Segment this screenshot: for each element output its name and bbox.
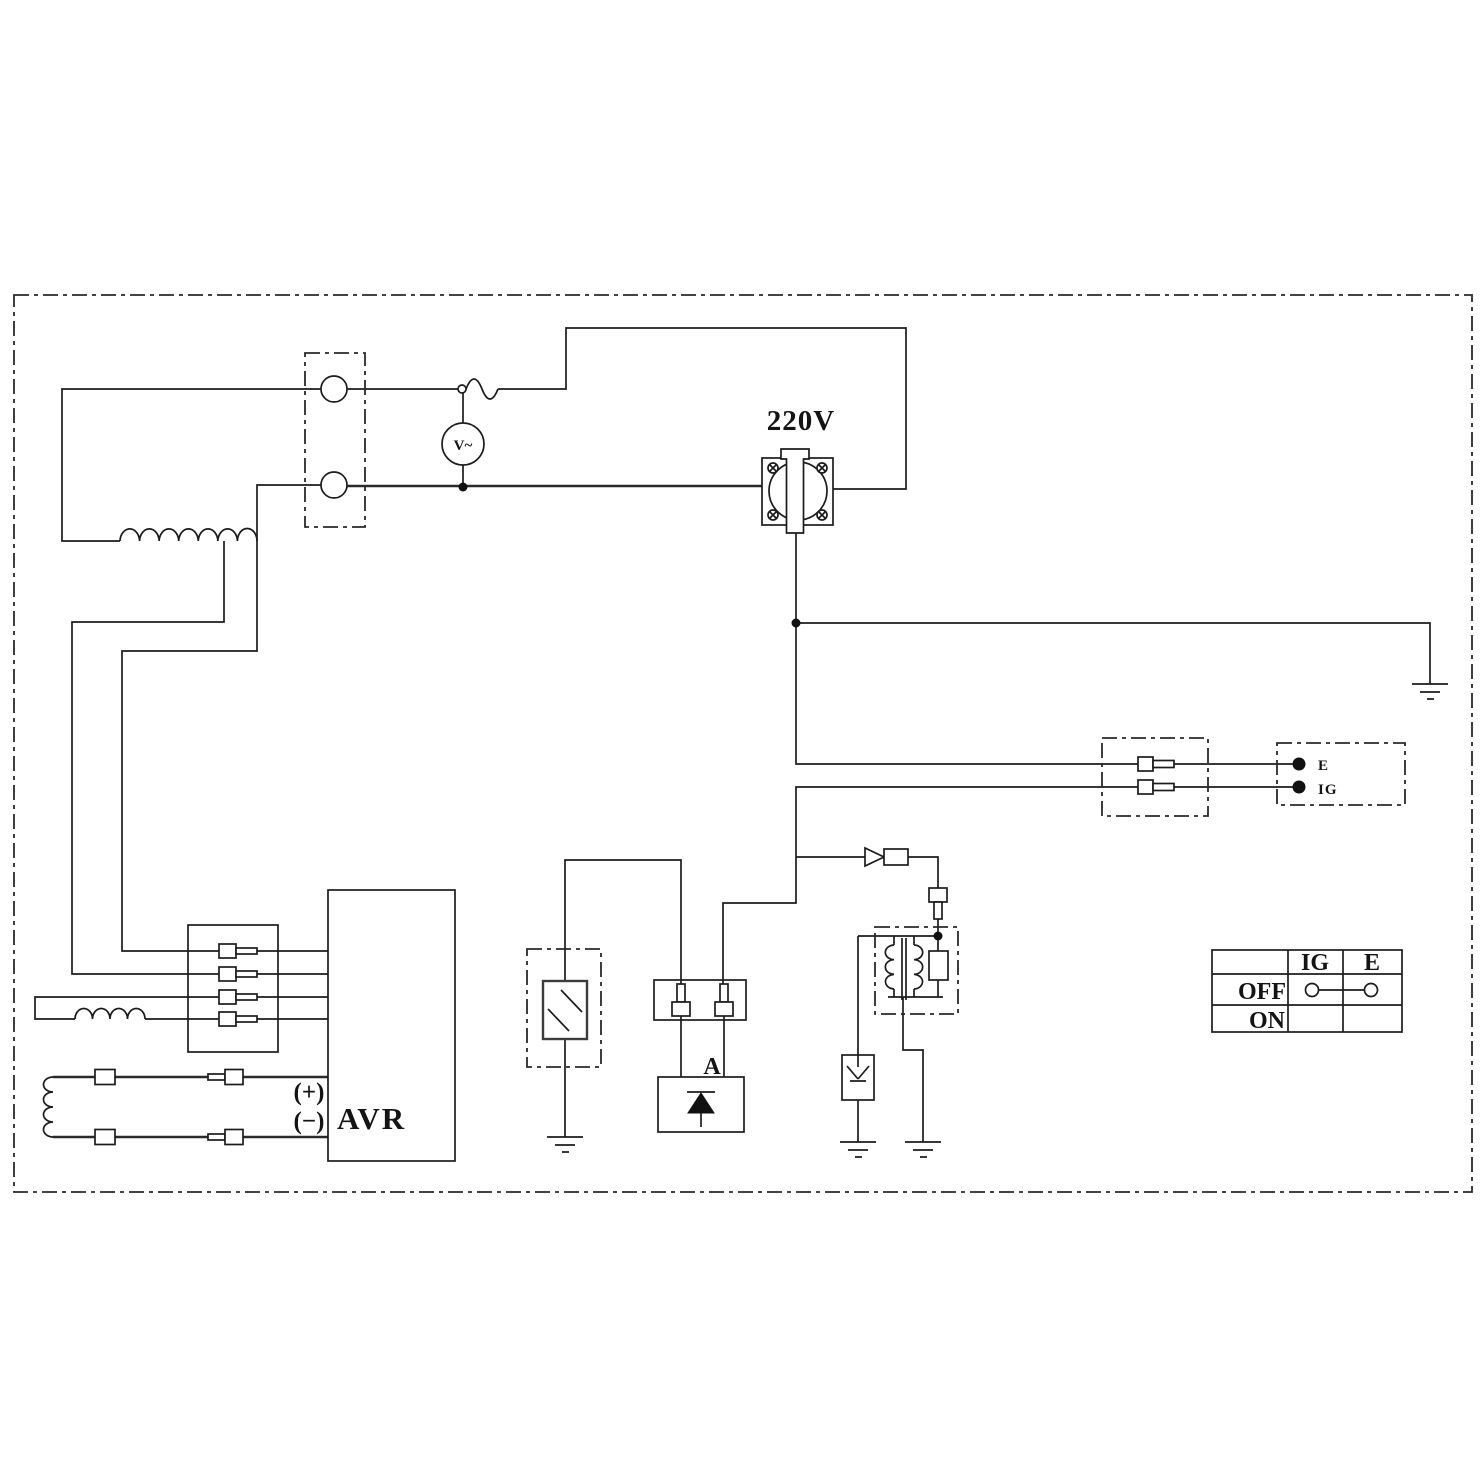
- junction-dot: [792, 619, 801, 628]
- primary-coil: [885, 945, 894, 989]
- terminal-ig-label: IG: [1318, 782, 1338, 798]
- terminal-dot-e: [1293, 758, 1306, 771]
- main-winding-coil: [120, 529, 257, 541]
- field-connectors: [95, 1070, 243, 1145]
- pin: [236, 971, 257, 977]
- wire-main-left: [62, 389, 321, 541]
- tap-node-circle: [458, 385, 466, 393]
- output-terminal-block: [305, 353, 365, 527]
- secondary-coil: [914, 945, 923, 989]
- junction-dot: [934, 932, 943, 941]
- avr-label: AVR: [337, 1101, 406, 1136]
- terminal-circle-1: [321, 376, 347, 402]
- plug-cap-socket: [929, 888, 947, 902]
- wiring-diagram-page: V~ 220V E IG: [0, 0, 1483, 1484]
- pin-socket: [715, 1002, 733, 1016]
- bullet-pin: [1153, 761, 1174, 768]
- wiring-diagram: V~ 220V E IG: [0, 0, 1483, 1484]
- coil-core-lines: [902, 938, 906, 1000]
- bullet-socket: [95, 1130, 115, 1145]
- bullet-socket: [1138, 780, 1153, 794]
- bullet-pin: [208, 1134, 225, 1140]
- diode-unit-a: A: [658, 1054, 744, 1132]
- connector-2pin: [654, 980, 746, 1020]
- avr-minus-label: (−): [294, 1108, 325, 1135]
- pin: [236, 948, 257, 954]
- table-row-off: OFF: [1238, 979, 1286, 1005]
- ignition-coil-unit: [875, 927, 958, 1014]
- pin-socket: [219, 967, 236, 981]
- bullet-socket: [225, 1070, 243, 1085]
- wire-connector-avr: [257, 951, 328, 1019]
- wire-top-run: [498, 328, 906, 489]
- bullet-socket: [225, 1130, 243, 1145]
- harness-connector-outline: [1102, 738, 1208, 816]
- pin: [236, 1016, 257, 1022]
- contact-circle-e: [1365, 984, 1378, 997]
- switch-table: IG E OFF ON: [1212, 950, 1402, 1034]
- plug-cap-pin: [934, 902, 942, 919]
- terminal-circle-2: [321, 472, 347, 498]
- bullet-socket: [95, 1070, 115, 1085]
- wire-e-line: [796, 623, 1293, 764]
- avr-unit: (+) (−) AVR: [294, 890, 455, 1161]
- wire-tap2: [122, 541, 257, 951]
- junction-dot: [459, 483, 468, 492]
- bullet-socket: [1138, 757, 1153, 771]
- ground-symbol-frame: [1412, 684, 1448, 699]
- indicator-lamp: [527, 949, 601, 1067]
- wire-tap1: [72, 541, 224, 974]
- ground-symbol-coil: [905, 1142, 941, 1157]
- table-header-ig: IG: [1301, 950, 1329, 976]
- avr-plus-label: (+): [294, 1079, 325, 1106]
- outlet-220v: 220V: [762, 405, 835, 533]
- field-winding-coil: [44, 1077, 54, 1137]
- diode-symbol: [865, 848, 884, 866]
- table-header-e: E: [1364, 950, 1380, 976]
- coil-resistor: [929, 951, 948, 980]
- pin-socket: [219, 990, 236, 1004]
- wire-coil-ground: [903, 997, 923, 1142]
- wire-ground-run: [796, 623, 1430, 684]
- outlet-voltage-label: 220V: [767, 405, 835, 437]
- spark-gap-symbol: [847, 1066, 869, 1081]
- terminal-e-label: E: [1318, 758, 1329, 774]
- bullet-pin: [208, 1074, 225, 1080]
- pin: [236, 994, 257, 1000]
- wire-winding-to-terminal2: [257, 485, 321, 541]
- pin-socket: [672, 1002, 690, 1016]
- resistor-symbol: [884, 849, 908, 865]
- contact-circle-ig: [1306, 984, 1319, 997]
- table-row-on: ON: [1249, 1008, 1286, 1034]
- diode-triangle: [688, 1093, 714, 1113]
- ig-branch-diode-resistor: [865, 848, 947, 919]
- diode-unit-label: A: [703, 1054, 721, 1080]
- pin-neck: [720, 984, 728, 1002]
- diagram-frame: [14, 295, 1472, 1192]
- pin-socket: [219, 944, 236, 958]
- harness-connector: [1102, 738, 1208, 816]
- fuse-element: [466, 379, 498, 399]
- ground-symbol-plug: [840, 1142, 876, 1157]
- bullet-pin: [1153, 784, 1174, 791]
- sub-winding-coil: [75, 1009, 145, 1019]
- engine-terminal-box: E IG: [1277, 743, 1405, 805]
- pin-socket: [219, 1012, 236, 1026]
- pin-neck: [677, 984, 685, 1002]
- engine-terminal-outline: [1277, 743, 1405, 805]
- voltmeter-label: V~: [454, 438, 473, 454]
- ground-symbol-lamp: [547, 1137, 583, 1152]
- terminal-dot-ig: [1293, 781, 1306, 794]
- connector-4pin: [188, 925, 278, 1052]
